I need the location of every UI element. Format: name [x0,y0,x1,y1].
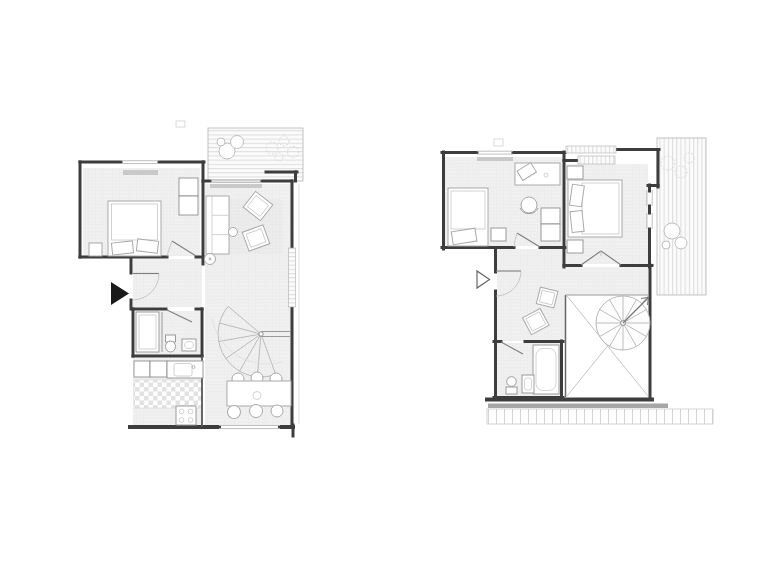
wardrobe [179,196,198,215]
tick-band [487,409,713,424]
dining-area [226,372,291,420]
plant-pot-icon [675,237,687,249]
pillow [136,239,158,253]
pillow [570,184,585,206]
dining-window [219,426,280,429]
vent-icon [494,139,503,146]
wardrobe [541,208,560,224]
kitchen-cabinet [134,361,150,377]
nightstand [491,228,506,241]
eaves-band-bottom [487,404,713,425]
plant-pot-icon [662,241,670,249]
eaves-hatch-band [566,146,616,153]
hall-floor [133,259,202,307]
desk-chair [521,197,537,213]
plant-pot-icon [217,138,225,146]
plant-pot-icon [664,223,680,239]
bedroom1-window [477,151,513,161]
nightstand [567,240,583,253]
entrance-arrow-icon [111,282,129,305]
spiral-stair-upper [596,296,650,350]
nightstand [89,243,102,256]
sofa [206,196,229,254]
dining-chair [271,405,283,417]
terrace-deck [657,138,706,295]
toilet-bowl [166,341,176,352]
living-side-window [289,248,296,307]
bedroom-window [121,161,159,175]
dining-chair [250,405,263,418]
kitchen-cabinet [150,361,167,377]
upper-floor-plan: Upper floor plan [442,138,713,424]
pouf [536,287,558,308]
stove [176,406,196,425]
entrance-arrow-icon [477,271,490,288]
stair-post [259,332,263,336]
kitchen-tile-floor [134,380,202,408]
lower-floor-plan: Lower floor plan [80,121,303,436]
plant-pot-icon [231,136,244,149]
nightstand [567,166,583,179]
floor-plan-drawing: Lower floor plan [0,0,780,574]
toilet-bowl [507,377,517,387]
shower [136,312,159,352]
bedroom2-high-window [578,156,615,164]
dining-table [227,381,291,406]
vent-icon [176,121,185,127]
wardrobe [541,224,560,241]
floor-plan-canvas: Lower floor plan [0,0,780,574]
toilet-tank [506,387,517,394]
pillow [570,210,584,232]
floor-lamp-dot [209,258,212,261]
roof-edge-bar [488,404,668,409]
pillow [111,241,133,255]
coffee-table [229,228,238,237]
wardrobe [179,178,198,196]
